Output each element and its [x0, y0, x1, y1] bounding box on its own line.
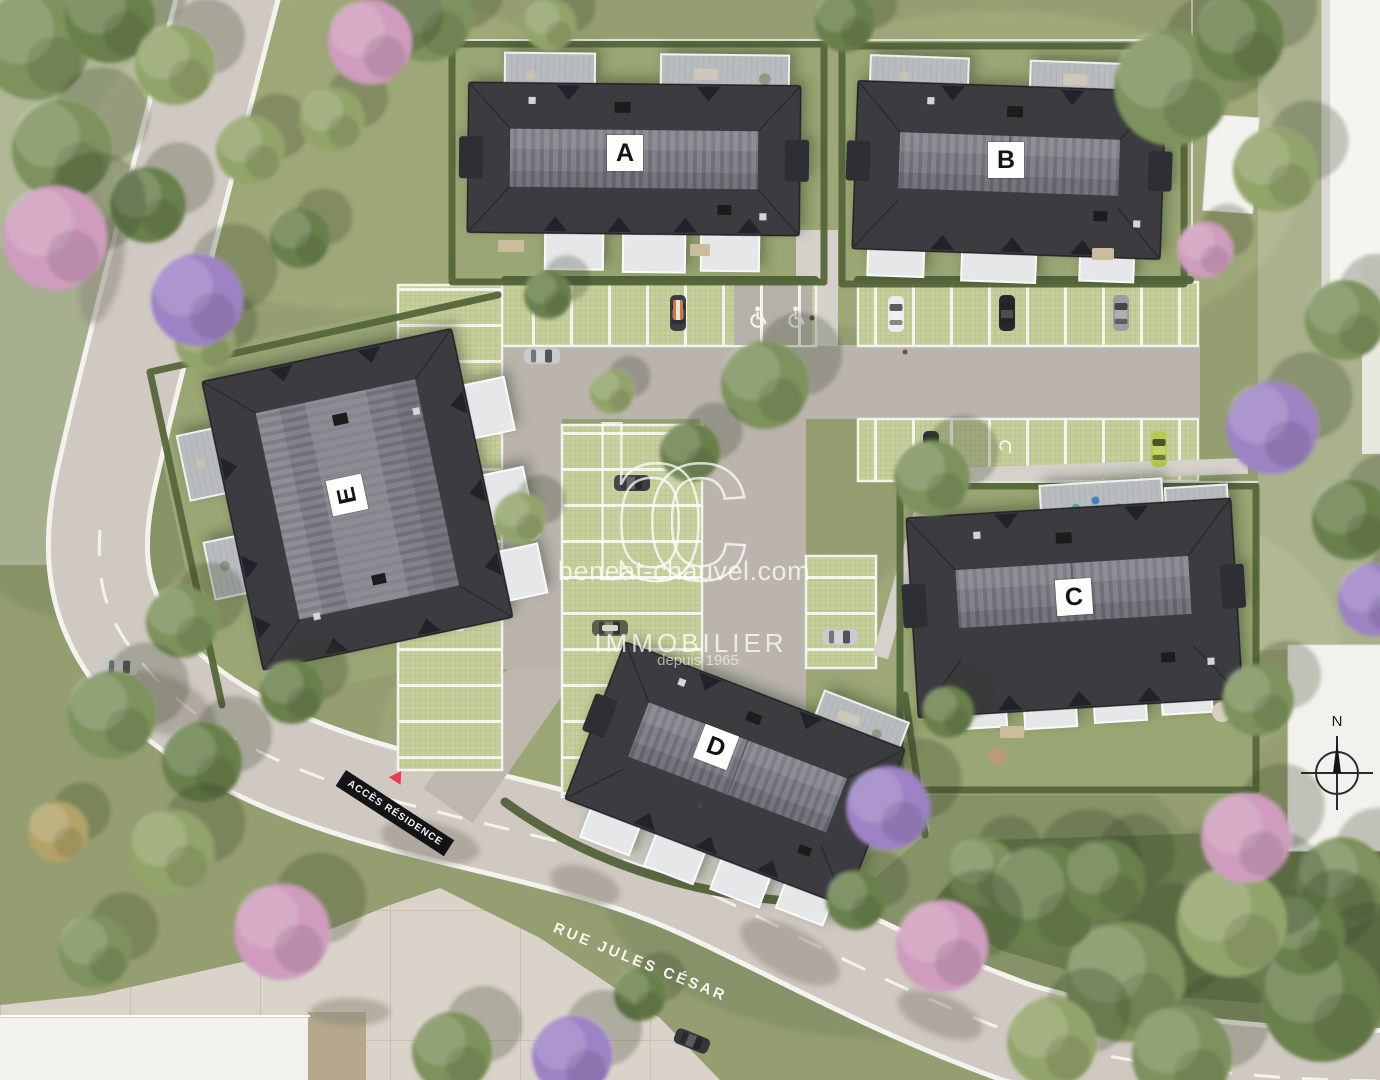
car	[524, 348, 560, 364]
compass-north-label: N	[1332, 713, 1343, 730]
building-label-e: E	[326, 474, 369, 517]
building-label-a: A	[607, 135, 643, 171]
car	[999, 295, 1015, 331]
van	[670, 295, 686, 331]
building-label-c: C	[1055, 578, 1093, 616]
neighbor-roof-bottom-left	[0, 1018, 308, 1080]
car	[822, 629, 858, 645]
watermark-website: beneat-chauvel.com	[558, 556, 810, 587]
site-plan-rendering	[0, 0, 1380, 1080]
car	[888, 296, 904, 332]
car	[1151, 431, 1167, 467]
car	[1113, 295, 1129, 331]
site-plan: A B C D E bc beneat-chauvel.com IMMOBILI…	[0, 0, 1380, 1080]
building-label-e-text: E	[331, 484, 363, 506]
building-label-b: B	[988, 142, 1024, 178]
watermark-tagline: depuis 1965	[657, 652, 739, 669]
